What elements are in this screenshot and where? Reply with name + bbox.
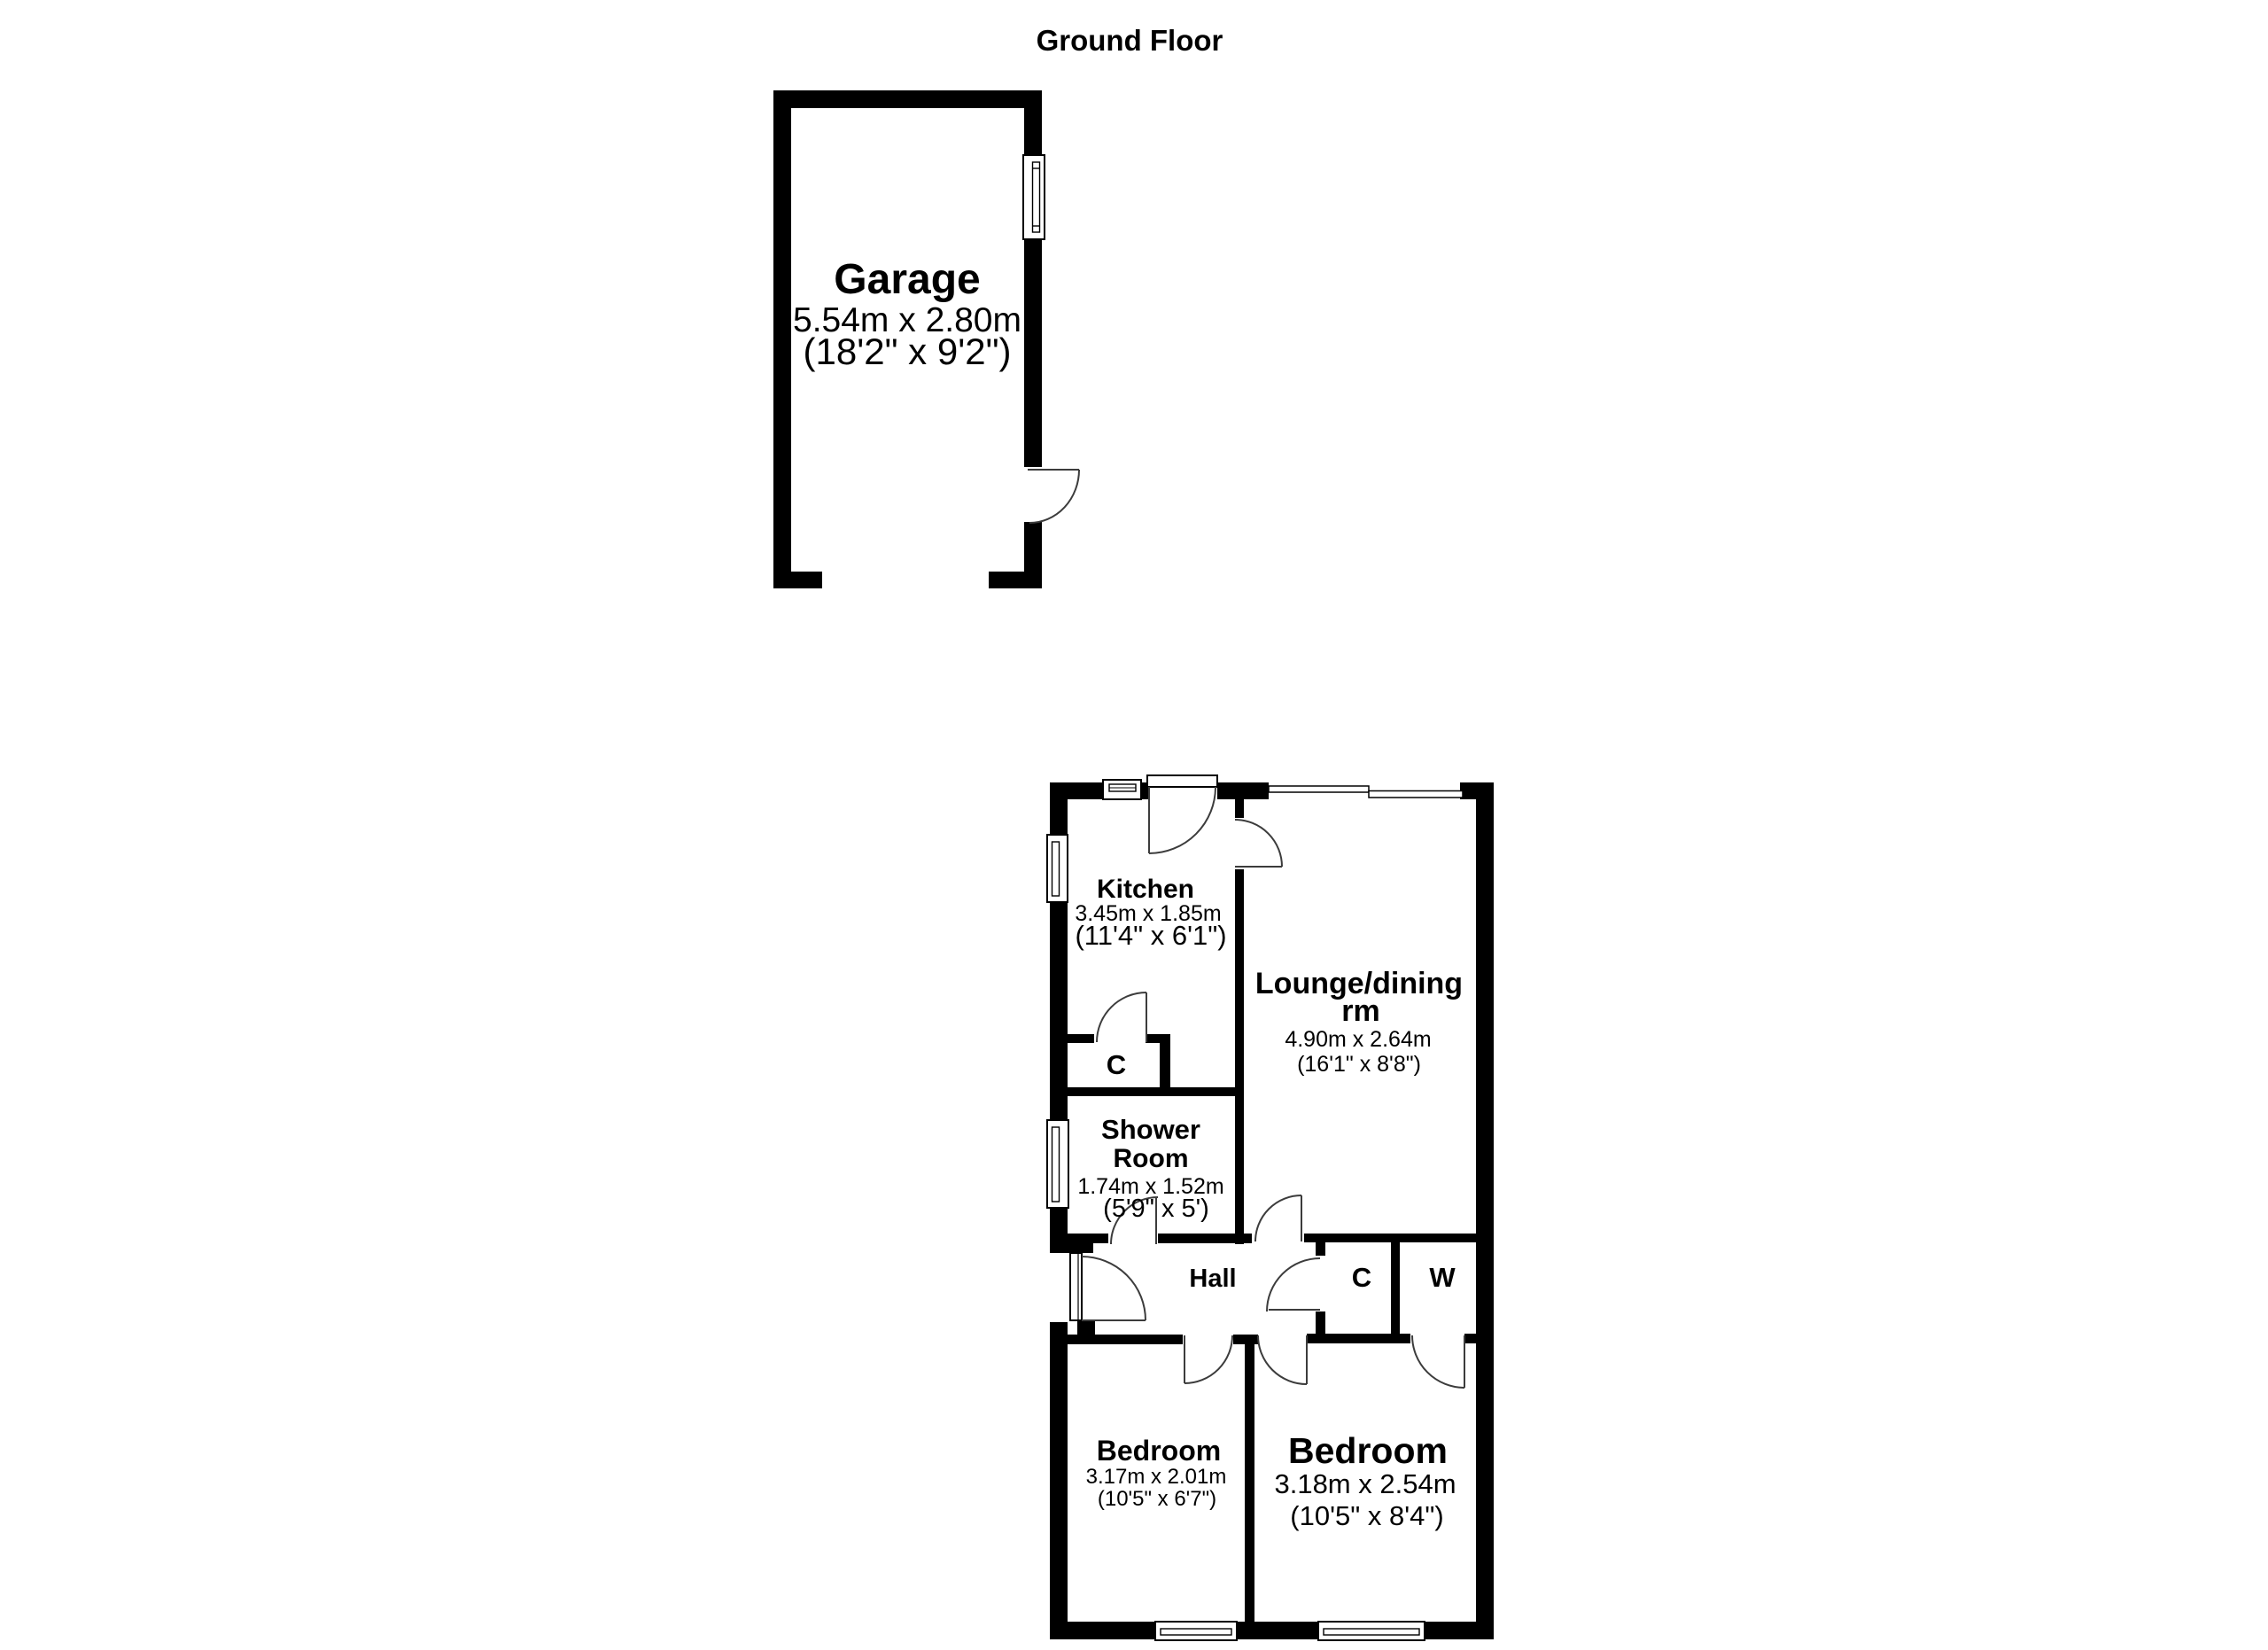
svg-text:Bedroom: Bedroom — [1288, 1430, 1448, 1471]
svg-text:W: W — [1429, 1262, 1456, 1293]
svg-text:(10'5" x 8'4"): (10'5" x 8'4") — [1290, 1500, 1443, 1531]
svg-text:(10'5" x 6'7"): (10'5" x 6'7") — [1098, 1487, 1216, 1511]
svg-text:(5'9" x 5'): (5'9" x 5') — [1103, 1195, 1209, 1223]
svg-text:(18'2" x 9'2"): (18'2" x 9'2") — [804, 331, 1012, 372]
svg-text:rm: rm — [1341, 994, 1379, 1028]
svg-text:Room: Room — [1114, 1144, 1189, 1173]
svg-text:3.17m x 2.01m: 3.17m x 2.01m — [1086, 1465, 1227, 1489]
svg-text:C: C — [1107, 1049, 1126, 1080]
svg-text:3.18m x 2.54m: 3.18m x 2.54m — [1274, 1468, 1456, 1499]
svg-text:C: C — [1352, 1262, 1371, 1293]
svg-text:Hall: Hall — [1189, 1265, 1236, 1293]
svg-text:Ground Floor: Ground Floor — [1037, 24, 1223, 57]
svg-text:Garage: Garage — [834, 256, 980, 303]
svg-text:4.90m x 2.64m: 4.90m x 2.64m — [1285, 1027, 1431, 1052]
svg-text:(11'4" x 6'1"): (11'4" x 6'1") — [1075, 920, 1226, 951]
svg-text:(16'1" x 8'8"): (16'1" x 8'8") — [1297, 1052, 1421, 1077]
svg-text:Bedroom: Bedroom — [1097, 1435, 1221, 1467]
svg-text:Kitchen: Kitchen — [1097, 875, 1194, 904]
svg-text:Shower: Shower — [1101, 1114, 1200, 1145]
